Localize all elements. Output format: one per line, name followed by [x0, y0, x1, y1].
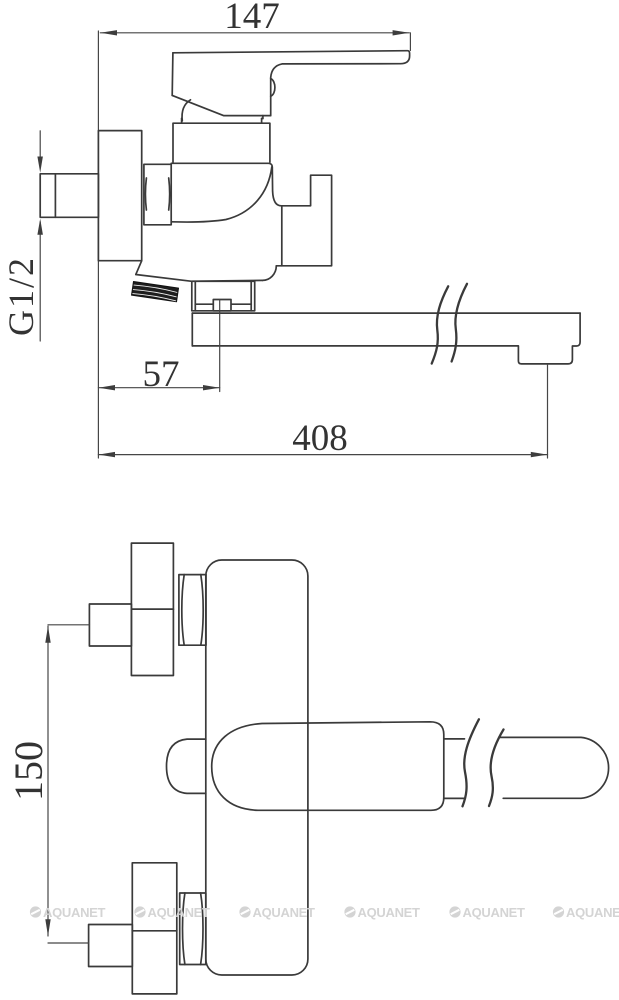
- svg-text:AQUANET: AQUANET: [148, 905, 211, 920]
- svg-text:G1/2: G1/2: [1, 256, 41, 336]
- svg-text:AQUANET: AQUANET: [43, 905, 106, 920]
- svg-text:408: 408: [292, 418, 348, 459]
- svg-text:AQUANET: AQUANET: [566, 905, 619, 920]
- svg-text:AQUANET: AQUANET: [253, 905, 316, 920]
- svg-text:AQUANET: AQUANET: [463, 905, 526, 920]
- svg-text:AQUANET: AQUANET: [358, 905, 421, 920]
- svg-text:147: 147: [224, 0, 280, 37]
- svg-text:57: 57: [143, 354, 180, 395]
- svg-text:150: 150: [6, 741, 51, 801]
